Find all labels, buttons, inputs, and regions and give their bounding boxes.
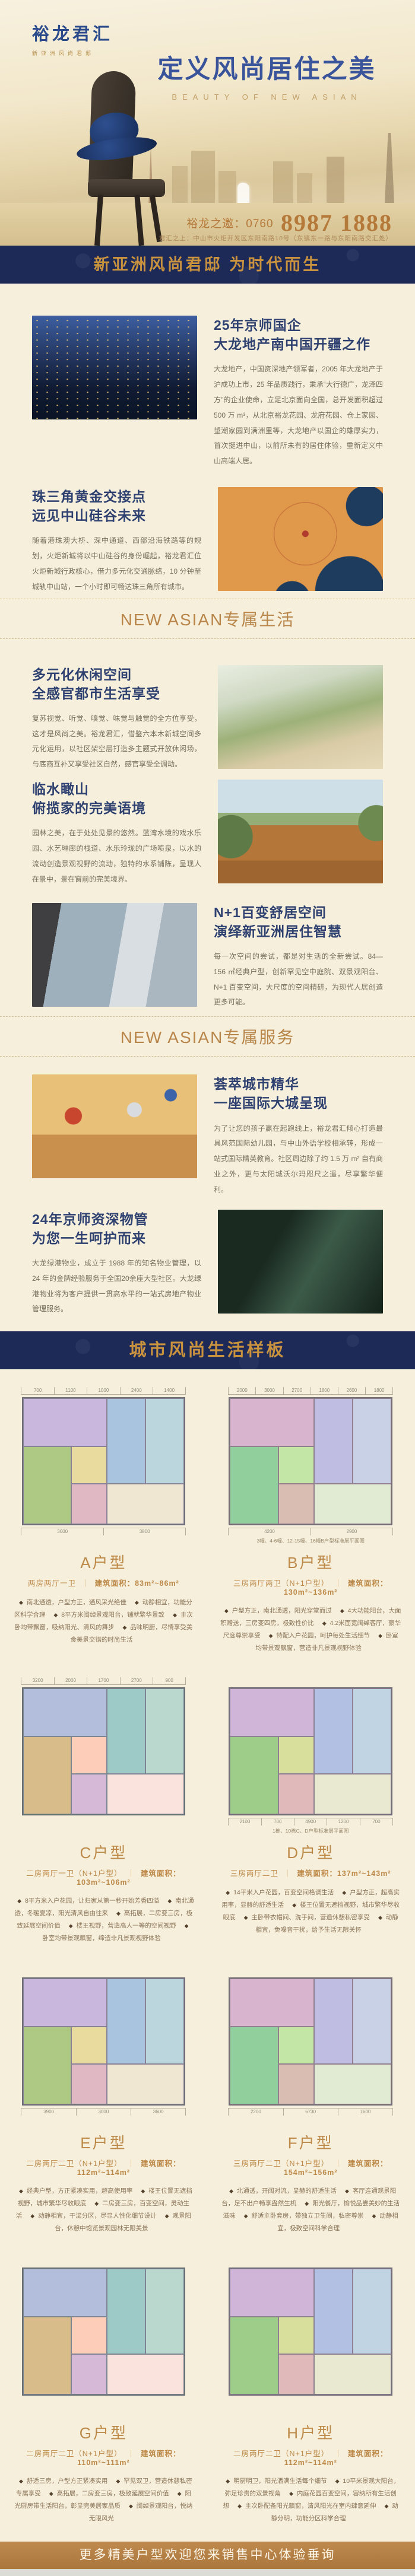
floorplan-layout: 二房两厅二卫（N+1户型）: [233, 2450, 329, 2458]
dimension-label: 3600: [131, 2108, 186, 2116]
hero-subtitle-en: BEAUTY OF NEW ASIAN: [119, 93, 415, 101]
floorplan-bullet: ◆ 主卧带衣帽间、洗手间，营造休憩私密享受: [244, 1914, 370, 1921]
floorplan-card: H户型 二房两厅二卫（N+1户型）｜建筑面积：112m²~114m² ◆ 明厨明…: [207, 2240, 414, 2530]
floorplan-layout: 二房两厅一卫（N+1户型）: [26, 1869, 122, 1878]
brand-logo-text: 裕龙君汇: [32, 20, 113, 45]
dimension-label: 1000: [87, 1387, 119, 1395]
floorplan-layout: 二房两厅二卫（N+1户型）: [26, 2160, 122, 2168]
floorplan-bullets: ◆ 明厨明卫，阳光洒满生活每个细节◆ 10平米景观大阳台，弥足珍贵的双景视角◆ …: [219, 2475, 403, 2525]
diamond-bullet-icon: ◆: [173, 1612, 177, 1618]
floorplan-bullet: ◆ 主次卧配备阳光飘窗，清风阳光在室内肆意延伸: [237, 2502, 376, 2510]
dimension-label: 1700: [87, 1677, 119, 1685]
region-map-photo: [218, 487, 383, 591]
footer-strip: [0, 2569, 415, 2576]
floorplan-bullets: ◆ 南北通透，户型方正，通风采光绝佳◆ 动静相宜，功能分区科学合理◆ 8平方米阔…: [12, 1597, 195, 1646]
dimension-label: 1600: [338, 2108, 393, 2116]
floorplan-bullet: ◆ 动静相宜，干湿分区，尽显人性化细节设计: [30, 2212, 156, 2219]
floorplan-card: 210070049001200700 1栋、10栋C、D户型标准层平面图 D户型…: [207, 1659, 414, 1950]
feature-heading: 24年京师资深物管为您一生呵护而来: [32, 1210, 201, 1248]
feature-body: 大龙地产，中国资深地产领军者，2005 年大龙地产于沪成功上市，25 年品质践行…: [214, 362, 383, 469]
floorplan-dims-bottom: 36003800: [21, 1528, 186, 1535]
floorplan-bullet: ◆ 高拓展，二房变三房，极致延展空间价值: [49, 2490, 169, 2497]
floorplan-dims-bottom: 42002900: [228, 1528, 393, 1535]
floorplan-bullet: ◆ 舒适主卧套房，带独立卫生间，私密尊崇: [244, 2212, 364, 2219]
floorplan-bullet: ◆ 特配入户花园，呵护每处生活细节: [269, 1632, 370, 1639]
floorplan-spec: 三房两厅二卫｜建筑面积：137m²~143m²: [219, 1867, 403, 1878]
dimension-label: 2200: [228, 2108, 283, 2116]
floorplan-bullet: ◆ 经典户型，方正紧凑实用，超高使用率: [19, 2187, 132, 2195]
diamond-bullet-icon: ◆: [94, 2200, 99, 2206]
floorplan-layout: 三房两厅两卫（N+1户型）: [233, 1579, 329, 1588]
lifestyle-banner-text: 城市风尚生活样板: [129, 1341, 286, 1360]
diamond-bullet-icon: ◆: [165, 2213, 169, 2219]
diamond-bullet-icon: ◆: [167, 1898, 172, 1904]
dimension-label: 3800: [103, 1528, 186, 1535]
diamond-bullet-icon: ◆: [289, 2491, 293, 2497]
diamond-bullet-icon: ◆: [372, 2213, 376, 2219]
floorplan-spec: 二房两厅一卫（N+1户型）｜建筑面积：103m²~106m²: [12, 1867, 195, 1887]
blue-bowler-hat-art: [66, 102, 163, 173]
diamond-bullet-icon: ◆: [135, 1599, 139, 1605]
diamond-bullet-icon: ◆: [129, 2503, 133, 2509]
floorplan-bullet: ◆ 8平方米阔绰景观阳台，铺就繁华景致: [53, 1611, 164, 1618]
dimension-label: 4200: [228, 1528, 310, 1535]
feature-property-service: 24年京师资深物管为您一生呵护而来 大龙绿港物业，成立于 1988 年的知名物业…: [32, 1210, 383, 1318]
floorplan-name: A户型: [12, 1551, 195, 1573]
floorplan-spec: 二房两厅二卫（N+1户型）｜建筑面积：110m²~111m²: [12, 2447, 195, 2467]
floorplan-layout: 二房两厅二卫（N+1户型）: [26, 2450, 122, 2458]
feature-body: 随着港珠澳大桥、深中通道、西部沿海铁路等的规划，火炬新城将以中山硅谷的身份崛起，…: [32, 533, 201, 594]
floorplans-grid: 7001100100024001400 36003800 A户型 两房两厅一卫｜…: [0, 1369, 415, 2530]
feature-space: N+1百变舒居空间演绎新亚洲居住智慧 每一次空间的尝试，都是对生活的全新尝试。8…: [32, 903, 383, 1011]
diamond-bullet-icon: ◆: [244, 1914, 248, 1920]
dimension-label: 2000: [54, 1677, 87, 1685]
dimension-label: 2600: [338, 1387, 365, 1395]
feature-body: 每一次空间的尝试，都是对生活的全新尝试。84—156 ㎡经典户型，创新罕见空中庭…: [214, 949, 383, 1010]
diamond-bullet-icon: ◆: [335, 2478, 340, 2484]
diamond-bullet-icon: ◆: [122, 1624, 126, 1630]
floorplan-image: 3200200017002700900: [12, 1677, 195, 1834]
floorplan-spec: 二房两厅二卫（N+1户型）｜建筑面积：112m²~114m²: [12, 2157, 195, 2177]
diamond-bullet-icon: ◆: [116, 1910, 121, 1916]
floorplan-card: 3200200017002700900 C户型 二房两厅一卫（N+1户型）｜建筑…: [0, 1659, 207, 1950]
floorplan-bullet: ◆ 8平方米入户花园，让归家从第一秒开始芳香四溢: [17, 1897, 159, 1904]
section-divider-text: NEW ASIAN专属生活: [121, 610, 295, 629]
floorplan-bullet: ◆ 南北通透，户型方正，通风采光绝佳: [19, 1599, 126, 1606]
brand-tagline: 新亚洲风尚君邸: [32, 49, 113, 57]
garden-gym-photo: [218, 665, 383, 769]
floorplan-layout: 三房两厅二卫: [230, 1869, 278, 1878]
floorplan-spec: 三房两厅两卫（N+1户型）｜建筑面积：130m²~136m²: [219, 1577, 403, 1597]
floorplan-image: [219, 2257, 403, 2414]
hero: 裕龙君汇 新亚洲风尚君邸 定义风尚居住之美 BEAUTY OF NEW ASIA…: [0, 0, 415, 246]
floorplan-dims-bottom: 210070049001200700: [228, 1818, 393, 1826]
floorplan-bullet: ◆ 北通透，开阔对流，显赫的舒适生活: [229, 2187, 337, 2195]
feature-developer: 25年京师国企大龙地产南中国开疆之作 大龙地产，中国资深地产领军者，2005 年…: [32, 316, 383, 469]
terrace-photo: [218, 780, 383, 883]
floorplan-area: 建筑面积：137m²~143m²: [297, 1869, 391, 1878]
diamond-bullet-icon: ◆: [185, 1923, 189, 1929]
floorplan-dims-top: 200030002700180026001800: [228, 1387, 393, 1395]
living-room-photo: [32, 903, 197, 1007]
dimension-label: 2700: [120, 1677, 153, 1685]
dimension-label: 1100: [54, 1387, 87, 1395]
diamond-bullet-icon: ◆: [342, 1890, 346, 1896]
floorplan-bullet: ◆ 楼王视野，营造高人一等的空间视野: [69, 1922, 176, 1929]
diamond-bullet-icon: ◆: [292, 1902, 296, 1908]
dimension-label: 3000: [255, 1387, 283, 1395]
feature-heading: 25年京师国企大龙地产南中国开疆之作: [214, 316, 383, 354]
floorplan-image: [12, 2257, 195, 2414]
feature-heading: N+1百变舒居空间演绎新亚洲居住智慧: [214, 903, 383, 941]
diamond-bullet-icon: ◆: [378, 1914, 382, 1920]
slogan-banner-text: 新亚洲风尚君邸 为时代而生: [94, 256, 322, 273]
floorplan-bullets: ◆ 北通透，开阔对流，显赫的舒适生活◆ 客厅连通观景阳台，足不出户畅享盎然生机◆…: [219, 2185, 403, 2235]
dimension-label: 700: [21, 1387, 53, 1395]
floorplan-name: C户型: [12, 1841, 195, 1863]
dimension-label: 3200: [21, 1677, 53, 1685]
city-night-photo: [32, 316, 197, 419]
floorplan-dims-bottom: 390030003600: [21, 2108, 186, 2116]
feature-leisure: 多元化休闲空间全感官都市生活享受 复苏视觉、听觉、嗅觉、味觉与触觉的全方位享受，…: [32, 665, 383, 773]
diamond-bullet-icon: ◆: [340, 1608, 344, 1614]
dimension-label: 1800: [311, 1387, 338, 1395]
feature-body: 为了让您的孩子赢在起跑线上，裕龙君汇倾心打造最具风范国际幼儿园，与中山外语学校相…: [214, 1121, 383, 1198]
floorplan-caption: 1栋、10栋C、D户型标准层平面图: [219, 1827, 403, 1834]
dimension-label: 2000: [228, 1387, 255, 1395]
floorplan-drawing: [22, 1977, 186, 2106]
floorplan-dims-top: 3200200017002700900: [21, 1677, 186, 1685]
diamond-bullet-icon: ◆: [53, 1612, 58, 1618]
dimension-label: 3600: [21, 1528, 103, 1535]
diamond-bullet-icon: ◆: [49, 2491, 53, 2497]
phone-invite-label: 裕龙之邀：0760: [186, 218, 273, 230]
feature-education: 荟萃城市精华一座国际大城呈现 为了让您的孩子赢在起跑线上，裕龙君汇倾心打造最具风…: [32, 1074, 383, 1197]
floorplan-card: 220067301600 F户型 三房两厅二卫（N+1户型）｜建筑面积：154m…: [207, 1950, 414, 2240]
floorplan-bullets: ◆ 舒适三房，户型方正紧凑实用◆ 罕见双卫，营造休憩私密专属享受◆ 高拓展，二房…: [12, 2475, 195, 2525]
floorplan-bullets: ◆ 14平米入户花园，百变空间格调生活◆ 户型方正，超高实用率，显赫的舒适生活◆…: [219, 1887, 403, 1936]
diamond-bullet-icon: ◆: [17, 1898, 21, 1904]
diamond-bullet-icon: ◆: [224, 1608, 229, 1614]
floorplan-drawing: [22, 1397, 186, 1525]
feature-heading: 多元化休闲空间全感官都市生活享受: [32, 665, 201, 703]
dimension-label: 3000: [76, 2108, 131, 2116]
floorplan-layout: 两房两厅一卫: [28, 1579, 76, 1588]
dimension-label: 2700: [283, 1387, 311, 1395]
feature-heading: 临水瞰山俯揽家的完美语境: [32, 780, 201, 818]
floorplan-bullets: ◆ 户型方正，南北通透，阳光穿堂而过◆ 4大功能阳台，大面积赠送，三房变四房，极…: [219, 1605, 403, 1655]
diamond-bullet-icon: ◆: [30, 2213, 34, 2219]
floorplan-spec: 二房两厅二卫（N+1户型）｜建筑面积：112m²~114m²: [219, 2447, 403, 2467]
floorplan-bullet: ◆ 户型方正，南北通透，阳光穿堂而过: [224, 1607, 332, 1614]
diamond-bullet-icon: ◆: [345, 2188, 349, 2194]
floorplan-layout: 三房两厅二卫（N+1户型）: [233, 2160, 329, 2168]
diamond-bullet-icon: ◆: [116, 2478, 120, 2484]
section-divider-life: NEW ASIAN专属生活: [0, 599, 415, 639]
diamond-bullet-icon: ◆: [305, 2200, 309, 2206]
floorplan-image: 200030002700180026001800 42002900 3幢、4-6…: [219, 1387, 403, 1544]
floorplan-image: 390030003600: [12, 1967, 195, 2124]
floorplan-spec: 三房两厅二卫（N+1户型）｜建筑面积：154m²~156m²: [219, 2157, 403, 2177]
brand-logo: 裕龙君汇 新亚洲风尚君邸: [32, 20, 113, 57]
feature-heading: 珠三角黄金交接点远见中山硅谷未来: [32, 487, 201, 525]
floorplan-bullet: ◆ 明厨明卫，阳光洒满生活每个细节: [226, 2478, 327, 2485]
feature-body: 园林之美，在于处处见景的悠然。蓝湾水境的戏水乐园、水艺琳廊的栈道、水乐玲珑的广场…: [32, 826, 201, 887]
dimension-label: 900: [153, 1677, 186, 1685]
dimension-label: 1800: [365, 1387, 393, 1395]
phone-number[interactable]: 8987 1888: [281, 209, 392, 236]
phone-cta[interactable]: 裕龙之邀：0760 8987 1888: [186, 209, 392, 237]
floorplan-caption: 3幢、4-6幢、12-15幢、16幢B户型标准层平面图: [219, 1537, 403, 1544]
floorplan-image: 220067301600: [219, 1967, 403, 2124]
diamond-bullet-icon: ◆: [226, 2478, 230, 2484]
section-divider-service: NEW ASIAN专属服务: [0, 1016, 415, 1057]
floorplan-bullet: ◆ 14平米入户花园，百变空间格调生活: [226, 1889, 334, 1896]
feature-body: 复苏视觉、听觉、嗅觉、味觉与触觉的全方位享受，这才是风尚之美。裕龙君汇，借鉴六本…: [32, 711, 201, 772]
diamond-bullet-icon: ◆: [384, 2503, 388, 2509]
diamond-bullet-icon: ◆: [69, 1923, 73, 1929]
diamond-bullet-icon: ◆: [19, 1599, 23, 1605]
dimension-label: 700: [360, 1818, 393, 1826]
footer-banner: 更多精美户型欢迎您来销售中心体验垂询: [0, 2542, 415, 2569]
diamond-bullet-icon: ◆: [237, 2503, 242, 2509]
floorplan-card: G户型 二房两厅二卫（N+1户型）｜建筑面积：110m²~111m² ◆ 舒适三…: [0, 2240, 207, 2530]
floorplan-image: 210070049001200700 1栋、10栋C、D户型标准层平面图: [219, 1677, 403, 1834]
floorplan-bullets: ◆ 经典户型，方正紧凑实用，超高使用率◆ 楼王位置无遮挡视野，城市繁华尽收眼底◆…: [12, 2185, 195, 2235]
feature-body: 大龙绿港物业，成立于 1988 年的知名物业管理，以 24 年的金牌经验服务于全…: [32, 1256, 201, 1317]
section-divider-text: NEW ASIAN专属服务: [121, 1028, 295, 1047]
floorplan-bullets: ◆ 8平方米入户花园，让归家从第一秒开始芳香四溢◆ 南北通透，冬暖夏凉，阳光清风…: [12, 1895, 195, 1945]
slogan-banner: 新亚洲风尚君邸 为时代而生: [0, 246, 415, 284]
footer-banner-text: 更多精美户型欢迎您来销售中心体验垂询: [80, 2548, 336, 2562]
dimension-label: 6730: [283, 2108, 338, 2116]
hero-title: 定义风尚居住之美: [119, 49, 415, 85]
floorplan-name: D户型: [219, 1841, 403, 1863]
dimension-label: 1200: [327, 1818, 359, 1826]
floorplan-card: 390030003600 E户型 二房两厅二卫（N+1户型）｜建筑面积：112m…: [0, 1950, 207, 2240]
floorplan-name: H户型: [219, 2421, 403, 2443]
floorplan-image: 7001100100024001400 36003800: [12, 1387, 195, 1544]
floorplan-area: 建筑面积：83m²~86m²: [95, 1579, 179, 1588]
floorplan-name: F户型: [219, 2131, 403, 2153]
dimension-label: 2900: [311, 1528, 393, 1535]
diamond-bullet-icon: ◆: [378, 1633, 382, 1639]
dimension-label: 3900: [21, 2108, 75, 2116]
floorplan-card: 200030002700180026001800 42002900 3幢、4-6…: [207, 1369, 414, 1659]
floorplan-drawing: [22, 1687, 186, 1815]
dimension-label: 4900: [294, 1818, 327, 1826]
dimension-label: 2100: [228, 1818, 261, 1826]
diamond-bullet-icon: ◆: [229, 2188, 233, 2194]
address-line: 君汇之上：中山市火炬开发区东阳南路10号（东镇东一路与东阳南路交汇处）: [159, 234, 392, 243]
kindergarten-photo: [32, 1074, 197, 1178]
floorplan-drawing: [229, 1397, 392, 1525]
feature-location: 珠三角黄金交接点远见中山硅谷未来 随着港珠澳大桥、深中通道、西部沿海铁路等的规划…: [32, 487, 383, 595]
feature-heading: 荟萃城市精华一座国际大城呈现: [214, 1074, 383, 1112]
lifestyle-banner: 城市风尚生活样板: [0, 1331, 415, 1369]
butler-photo: [218, 1210, 383, 1314]
floorplan-bullet: ◆ 舒适三房，户型方正紧凑实用: [19, 2478, 107, 2485]
diamond-bullet-icon: ◆: [322, 1620, 327, 1626]
floorplan-drawing: [229, 1687, 392, 1815]
floorplan-dims-bottom: 220067301600: [228, 2108, 393, 2116]
dimension-label: 1400: [153, 1387, 186, 1395]
diamond-bullet-icon: ◆: [178, 2491, 182, 2497]
floorplan-drawing: [229, 2267, 392, 2396]
floorplan-drawing: [22, 2267, 186, 2396]
diamond-bullet-icon: ◆: [141, 2188, 145, 2194]
diamond-bullet-icon: ◆: [19, 2188, 23, 2194]
dimension-label: 2400: [120, 1387, 153, 1395]
feature-landscape: 临水瞰山俯揽家的完美语境 园林之美，在于处处见景的悠然。蓝湾水境的戏水乐园、水艺…: [32, 780, 383, 888]
diamond-bullet-icon: ◆: [226, 1890, 230, 1896]
floorplan-name: E户型: [12, 2131, 195, 2153]
floorplan-card: 7001100100024001400 36003800 A户型 两房两厅一卫｜…: [0, 1369, 207, 1659]
floorplan-name: B户型: [219, 1551, 403, 1573]
dimension-label: 700: [261, 1818, 294, 1826]
diamond-bullet-icon: ◆: [19, 2478, 23, 2484]
floorplan-spec: 两房两厅一卫｜建筑面积：83m²~86m²: [12, 1577, 195, 1588]
floorplan-name: G户型: [12, 2421, 195, 2443]
diamond-bullet-icon: ◆: [269, 1633, 273, 1639]
flyer-page: 裕龙君汇 新亚洲风尚君邸 定义风尚居住之美 BEAUTY OF NEW ASIA…: [0, 0, 415, 2576]
diamond-bullet-icon: ◆: [244, 2213, 248, 2219]
floorplan-dims-top: 7001100100024001400: [21, 1387, 186, 1395]
floorplan-drawing: [229, 1977, 392, 2106]
